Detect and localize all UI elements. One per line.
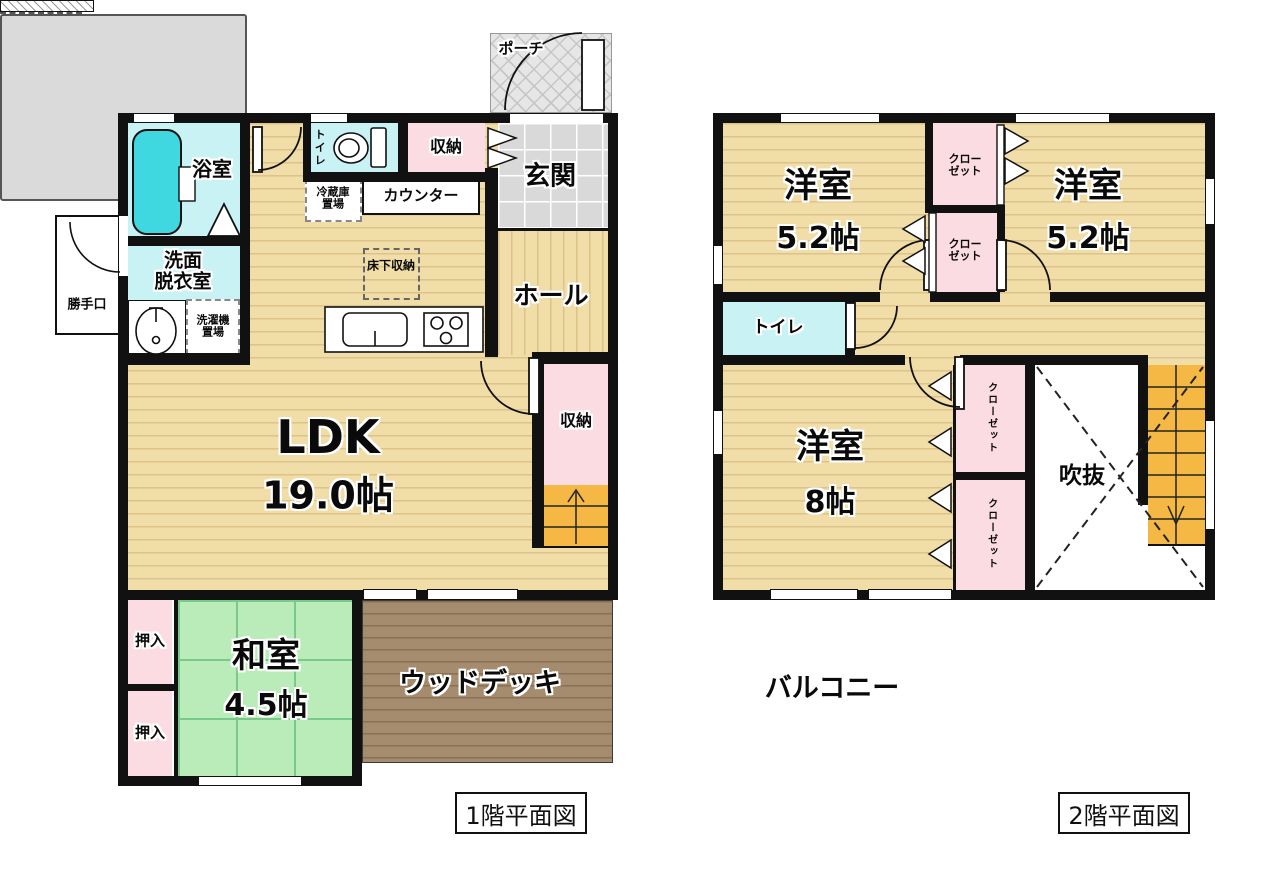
- window: [868, 589, 952, 600]
- label-fridge-space: 冷蔵庫 置場: [317, 187, 350, 212]
- sliding-door: [0, 0, 94, 12]
- label-storage-side: 収納: [560, 412, 592, 430]
- label-closet-top-2: クロー ゼット: [949, 239, 982, 264]
- label-bedroom-right-size: 5.2帖: [1046, 222, 1129, 256]
- label-back-door: 勝手口: [67, 299, 106, 314]
- wall: [532, 352, 544, 548]
- label-toilet-1f: トイレ: [313, 129, 325, 168]
- floor2-title-box: 2階平面図: [1058, 792, 1190, 834]
- window: [198, 776, 302, 786]
- label-closet-side-1: クローゼット: [985, 382, 996, 454]
- label-bedroom-main-size: 8帖: [805, 486, 856, 520]
- wall: [930, 292, 1000, 302]
- wall: [955, 472, 1035, 480]
- wall: [1138, 365, 1148, 505]
- window: [713, 245, 723, 285]
- floor1-title-box: 1階平面図: [455, 792, 587, 834]
- wall: [925, 205, 1005, 213]
- label-closet-side-2: クローゼット: [985, 498, 996, 570]
- label-wood-deck: ウッドデッキ: [399, 669, 561, 699]
- wall: [303, 172, 498, 182]
- label-washing-machine: 洗濯機 置場: [197, 315, 230, 340]
- label-ldk-name: LDK: [276, 412, 379, 464]
- wall: [485, 232, 498, 357]
- wall: [352, 600, 362, 776]
- wall: [118, 684, 176, 691]
- label-oshiire-lower: 押入: [135, 725, 165, 742]
- label-balcony: バルコニー: [765, 674, 899, 704]
- wall: [485, 168, 498, 232]
- wall: [544, 546, 608, 548]
- window: [133, 113, 175, 123]
- window: [363, 589, 417, 600]
- label-porch: ポーチ: [498, 41, 543, 58]
- door-opening: [510, 114, 603, 123]
- wall: [118, 353, 250, 365]
- entrance-step-line: [498, 228, 608, 231]
- label-counter: カウンター: [383, 188, 458, 205]
- wall: [398, 123, 408, 172]
- wall: [925, 123, 933, 213]
- floor1-plan: [0, 0, 1280, 14]
- label-washroom: 洗面 脱衣室: [154, 251, 211, 294]
- label-japanese-room-name: 和室: [232, 637, 300, 675]
- label-storage-top: 収納: [430, 138, 462, 156]
- wall: [960, 355, 1148, 365]
- wall: [723, 355, 905, 365]
- wall: [997, 205, 1005, 292]
- label-bedroom-right-name: 洋室: [1054, 167, 1122, 205]
- label-ldk-size: 19.0帖: [262, 475, 394, 518]
- window: [780, 113, 880, 123]
- wall: [1148, 544, 1205, 546]
- window: [713, 410, 723, 455]
- floor2-title: 2階平面図: [1068, 796, 1179, 831]
- label-void: 吹抜: [1059, 464, 1105, 490]
- wall: [1050, 292, 1205, 302]
- window: [1205, 420, 1215, 530]
- wall: [128, 236, 240, 246]
- label-closet-top-1: クロー ゼット: [949, 154, 982, 179]
- label-underfloor-storage: 床下収納: [367, 259, 415, 272]
- label-oshiire-upper: 押入: [135, 633, 165, 650]
- label-bedroom-left-name: 洋室: [784, 167, 852, 205]
- window: [310, 113, 348, 123]
- label-bedroom-left-size: 5.2帖: [776, 222, 859, 256]
- back-door-box: [55, 215, 120, 335]
- label-toilet-2f: トイレ: [753, 318, 804, 337]
- label-entrance: 玄関: [524, 162, 576, 191]
- label-hall: ホール: [513, 282, 588, 310]
- window: [770, 589, 858, 600]
- back-door-opening: [119, 216, 128, 276]
- wall: [723, 292, 880, 302]
- label-japanese-room-size: 4.5帖: [224, 689, 307, 723]
- floor1-title: 1階平面図: [465, 796, 576, 831]
- window: [427, 589, 518, 600]
- wall: [240, 123, 250, 365]
- label-bedroom-main-name: 洋室: [796, 428, 864, 466]
- window: [1205, 178, 1215, 225]
- label-bathroom: 浴室: [192, 158, 232, 180]
- floor-plan-canvas: ポーチ 玄関 ホール 収納 トイレ 浴室 洗面 脱衣室 勝手口 冷蔵庫 置場 カ…: [0, 0, 1280, 876]
- window: [1015, 113, 1110, 123]
- wall: [118, 600, 128, 786]
